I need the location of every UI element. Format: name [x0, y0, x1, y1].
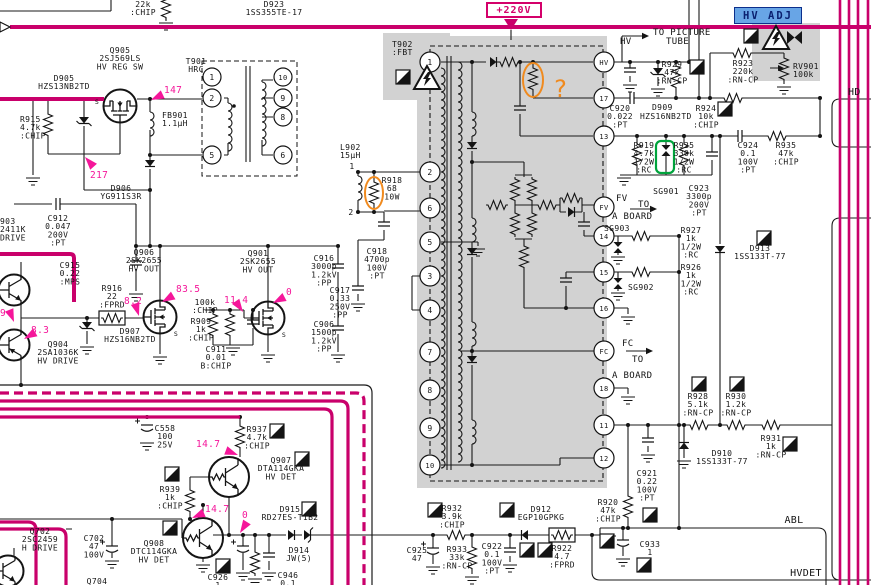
label-c918: C9184700p100V:PT — [364, 247, 390, 281]
label-tube2: TUBE — [666, 37, 689, 47]
label-sg903: SG903 — [604, 224, 630, 233]
label-sg901: SG901 — [653, 187, 679, 196]
svg-text:1: 1 — [209, 73, 214, 82]
svg-text:HV: HV — [599, 59, 609, 67]
label-to-board2b: A BOARD — [612, 371, 652, 381]
label-hv-net: HV — [620, 37, 632, 47]
label-q906: Q9062SK2655HV OUT — [126, 248, 162, 273]
svg-text:10: 10 — [425, 462, 434, 470]
label-to-board1a: TO — [638, 200, 650, 210]
label-r927: R9271k1/2W:RC — [681, 226, 702, 260]
label-c558: C55810025V — [155, 424, 176, 449]
label-q904: Q9042SA1036KHV DRIVE — [37, 340, 78, 365]
flag-icon-4 — [757, 231, 771, 245]
svg-text:6: 6 — [427, 204, 432, 213]
label-r931: R9311k:RN-CP — [756, 434, 787, 459]
label-r919: R9194.7k1/2W:RC — [634, 141, 655, 175]
label-d909b: HZS16NB2TD — [640, 112, 692, 121]
label-t902: T902:FBT — [392, 40, 413, 57]
label-q901: Q9012SK2655HV OUT — [240, 249, 276, 274]
label-to-board1b: A BOARD — [612, 212, 652, 222]
svg-text:FV: FV — [599, 204, 609, 212]
flag-icon-16 — [216, 559, 230, 573]
label-r930: R9301.2k:RN-CP — [721, 392, 752, 417]
label-l902-p1: 1 — [349, 162, 354, 171]
svg-text:11: 11 — [599, 422, 608, 430]
label-c925: C92547 — [407, 546, 428, 563]
voltage-callout-7: 9 — [0, 308, 6, 319]
label-d909: D909 — [652, 103, 673, 112]
svg-text:18: 18 — [599, 385, 608, 393]
label-c702: C70247100V — [84, 534, 105, 559]
resistor-r909 — [226, 312, 235, 338]
label-r929: R92947k:RN-CP — [657, 60, 688, 85]
label-hvdet-net: HVDET — [790, 568, 822, 579]
capacitor-c923 — [706, 152, 718, 156]
label-c912: C9120.047200V:PT — [45, 214, 71, 248]
inductor-l902 — [358, 176, 362, 200]
svg-text:2: 2 — [427, 168, 432, 177]
label-r-top: 22k:CHIP — [130, 0, 156, 17]
capacitor-c946 — [263, 553, 275, 557]
label-r939: R9391k:CHIP — [157, 485, 183, 510]
voltage-callout-3: 83.5 — [176, 284, 200, 295]
label-q908: Q908DTC114GKAHV DET — [131, 539, 178, 564]
label-c946: C9460.1 — [278, 571, 299, 585]
flag-icon-6 — [730, 377, 744, 391]
diode-d906 — [145, 160, 155, 167]
label-c926: C9261 — [208, 573, 229, 585]
resistor-r918 — [370, 180, 379, 206]
label-c915: C9150.22:MPS — [60, 261, 81, 286]
label-q901-s: S — [282, 331, 286, 339]
label-q905: Q9052SJ569LSHV REG SW — [97, 46, 144, 71]
capacitor-c558 — [135, 419, 153, 432]
label-q906-s: S — [174, 330, 178, 338]
resistor-r932 — [445, 531, 467, 540]
spark-gap-sg901 — [662, 145, 671, 156]
label-c917: C9170.33250V:PP — [330, 286, 351, 320]
label-q704: Q704 — [87, 577, 108, 585]
flag-icon-14 — [538, 543, 552, 557]
voltage-callout-5: 0 — [286, 287, 292, 298]
label-fb901: FB9011.1μH — [162, 111, 188, 128]
svg-text:8: 8 — [427, 386, 432, 395]
label-d923: D9231SS355TE-17 — [246, 0, 303, 17]
label-l902: L90215μH — [340, 143, 361, 160]
transistor-q903 — [0, 275, 30, 306]
label-r918: R9186810W — [382, 176, 403, 201]
svg-text:15: 15 — [599, 269, 608, 277]
resistor-r927 — [630, 232, 652, 241]
transistor-q904 — [0, 330, 30, 361]
spark-gap-sg903 — [614, 242, 623, 253]
flag-icon-9 — [637, 558, 651, 572]
label-to-board2a: TO — [632, 355, 644, 365]
diode-d912 — [522, 530, 529, 540]
svg-text:10: 10 — [278, 74, 287, 82]
mosfet-q901 — [252, 302, 285, 335]
spark-gap-sg902 — [614, 278, 623, 289]
label-r922: R9224.7:FPRD — [549, 544, 575, 569]
flag-icon-20 — [163, 521, 177, 535]
diode-d914 — [288, 530, 295, 540]
label-c906: C9061500p1.2kV:PP — [311, 320, 337, 354]
label-abl-net: ABL — [784, 515, 803, 526]
svg-text:9: 9 — [427, 424, 432, 433]
voltage-callout-10: 0 — [242, 510, 248, 521]
svg-text:9: 9 — [280, 94, 285, 103]
label-d914: D914JW(5) — [286, 546, 312, 563]
supply-voltage-text: +220V — [496, 5, 531, 16]
label-r932: R9323.9k:CHIP — [439, 504, 465, 529]
label-c916: C9163000p1.2kV:PP — [311, 254, 337, 288]
capacitor-c926 — [231, 540, 249, 553]
resistor-r931 — [760, 421, 782, 430]
label-r937: R9374.7k:CHIP — [244, 425, 270, 450]
svg-text:3: 3 — [427, 272, 432, 281]
t901-phase-dot — [232, 104, 236, 108]
bus-arrow-icon — [0, 22, 10, 32]
zener-d907 — [80, 322, 95, 331]
flag-icon-11 — [428, 503, 442, 517]
flag-icon-12 — [500, 503, 514, 517]
label-r920: R92047k:CHIP — [595, 498, 621, 523]
label-c933: C9331 — [640, 540, 661, 557]
label-r935: R93547k:CHIP — [773, 141, 799, 166]
svg-text:14: 14 — [599, 233, 608, 241]
label-query-annotation: ? — [553, 75, 568, 103]
flag-icon-8 — [643, 508, 657, 522]
label-r925: R925330k1/2W:RC — [674, 141, 695, 175]
resistor-22k — [162, 0, 171, 20]
zener-d905 — [77, 117, 92, 126]
resistor-r930 — [725, 421, 747, 430]
label-fv-net: FV — [616, 194, 628, 204]
label-r915: R9154.7k:CHIP — [20, 115, 46, 140]
schematic-canvas: 12653478910HV1713FV141516FC1811121251098… — [0, 0, 871, 585]
supply-voltage-badge: +220V — [486, 2, 542, 18]
hv-adj-badge: HV ADJ — [734, 7, 802, 24]
capacitor-c918 — [378, 222, 390, 226]
flag-icon-2 — [718, 102, 732, 116]
label-l902-p2: 2 — [348, 208, 353, 217]
label-c922: C9220.1100V:PT — [482, 542, 503, 576]
label-d912: D912EGP10GPKG — [518, 505, 565, 522]
flag-icon-18 — [165, 467, 179, 481]
svg-text:4: 4 — [427, 306, 432, 315]
svg-text:7: 7 — [427, 348, 432, 357]
flag-icon-13 — [520, 543, 534, 557]
mosfet-q905 — [104, 90, 137, 123]
resistor-r938 — [251, 550, 260, 576]
svg-text:5: 5 — [209, 151, 214, 160]
svg-text:16: 16 — [599, 305, 608, 313]
resistor-r924 — [722, 94, 744, 103]
resistor-r926 — [630, 268, 652, 277]
label-c920: C9200.022:PT — [607, 104, 633, 129]
resistor-r935 — [766, 132, 788, 141]
flag-icon-7 — [783, 437, 797, 451]
svg-text:FC: FC — [599, 348, 608, 356]
label-r933: R93333k:RN-CP — [442, 545, 473, 570]
diode-d910 — [679, 443, 689, 450]
resistor-r939 — [186, 488, 195, 514]
svg-text:8: 8 — [280, 113, 285, 122]
voltage-callout-9: 14.7 — [205, 504, 229, 515]
label-d906: D906YG911S3R — [100, 184, 141, 201]
label-d910: D9101SS133T-77 — [696, 449, 748, 466]
transistor-q702 — [0, 556, 24, 585]
label-r924: R92410k:CHIP — [693, 104, 719, 129]
label-c924: C9240.1100V:PT — [738, 141, 759, 175]
flag-icon-5 — [692, 377, 706, 391]
svg-text:6: 6 — [280, 151, 285, 160]
label-c911: C9110.01B:CHIP — [201, 345, 232, 370]
label-sg902: SG902 — [628, 283, 654, 292]
label-c923: C9233300p200V:PT — [686, 184, 712, 218]
resistor-r928 — [688, 421, 710, 430]
label-d913: D9131SS133T-77 — [734, 244, 786, 261]
transistor-q907 — [209, 457, 249, 497]
t901-primary — [228, 103, 232, 151]
svg-text:2: 2 — [209, 94, 214, 103]
svg-text:1: 1 — [427, 58, 432, 67]
label-q702: Q7022SC2459H DRIVE — [22, 527, 58, 552]
flag-icon-3 — [744, 29, 758, 43]
resistor-r920 — [624, 494, 633, 520]
flag-icon-0 — [396, 70, 410, 84]
label-c921: C9210.22100V:PT — [637, 469, 658, 503]
capacitor-c920 — [630, 92, 634, 104]
label-q905-s: S — [95, 98, 99, 106]
label-hd-net: HD — [848, 87, 861, 98]
diode-d913 — [715, 246, 725, 253]
voltage-callout-1: 217 — [90, 170, 108, 181]
flag-icon-17 — [270, 424, 284, 438]
label-d905: D905HZS13NB2TD — [38, 74, 90, 91]
to-picture-tube-arrow — [642, 33, 649, 39]
capacitor-c912 — [56, 198, 60, 210]
voltage-callout-8: 14.7 — [196, 439, 220, 450]
flag-icon-10 — [600, 534, 614, 548]
label-r926: R9261k1/2W:RC — [681, 263, 702, 297]
capacitor-c922 — [504, 548, 516, 552]
capacitor-c921 — [642, 438, 654, 442]
label-r-100k: 100k:CHIP — [192, 298, 218, 315]
label-r928: R9285.1k:RN-CP — [683, 392, 714, 417]
label-q903: 9032411KDRIVE — [0, 217, 26, 242]
schematic-page: 12653478910HV1713FV141516FC1811121251098… — [0, 0, 871, 585]
mosfet-q906 — [144, 301, 177, 334]
to-a-board-arrow2 — [646, 348, 653, 354]
transistor-q908 — [183, 518, 223, 558]
label-r909: R9091k:CHIP — [188, 317, 214, 342]
voltage-callout-0: 147 — [164, 85, 182, 96]
capacitor-c917 — [352, 286, 364, 290]
hv-adj-text: HV ADJ — [743, 10, 793, 22]
inductor-fb901 — [150, 112, 154, 136]
label-r916: R91622:FPRD — [99, 284, 125, 309]
t901-secondary — [262, 82, 266, 146]
svg-text:5: 5 — [427, 238, 432, 247]
svg-text:12: 12 — [599, 455, 608, 463]
label-t901: T901HRC — [186, 57, 207, 74]
resistor-r923 — [731, 49, 753, 58]
svg-text:13: 13 — [599, 133, 608, 141]
label-fc-net: FC — [622, 339, 634, 349]
svg-text:17: 17 — [599, 95, 608, 103]
flag-icon-1 — [690, 60, 704, 74]
